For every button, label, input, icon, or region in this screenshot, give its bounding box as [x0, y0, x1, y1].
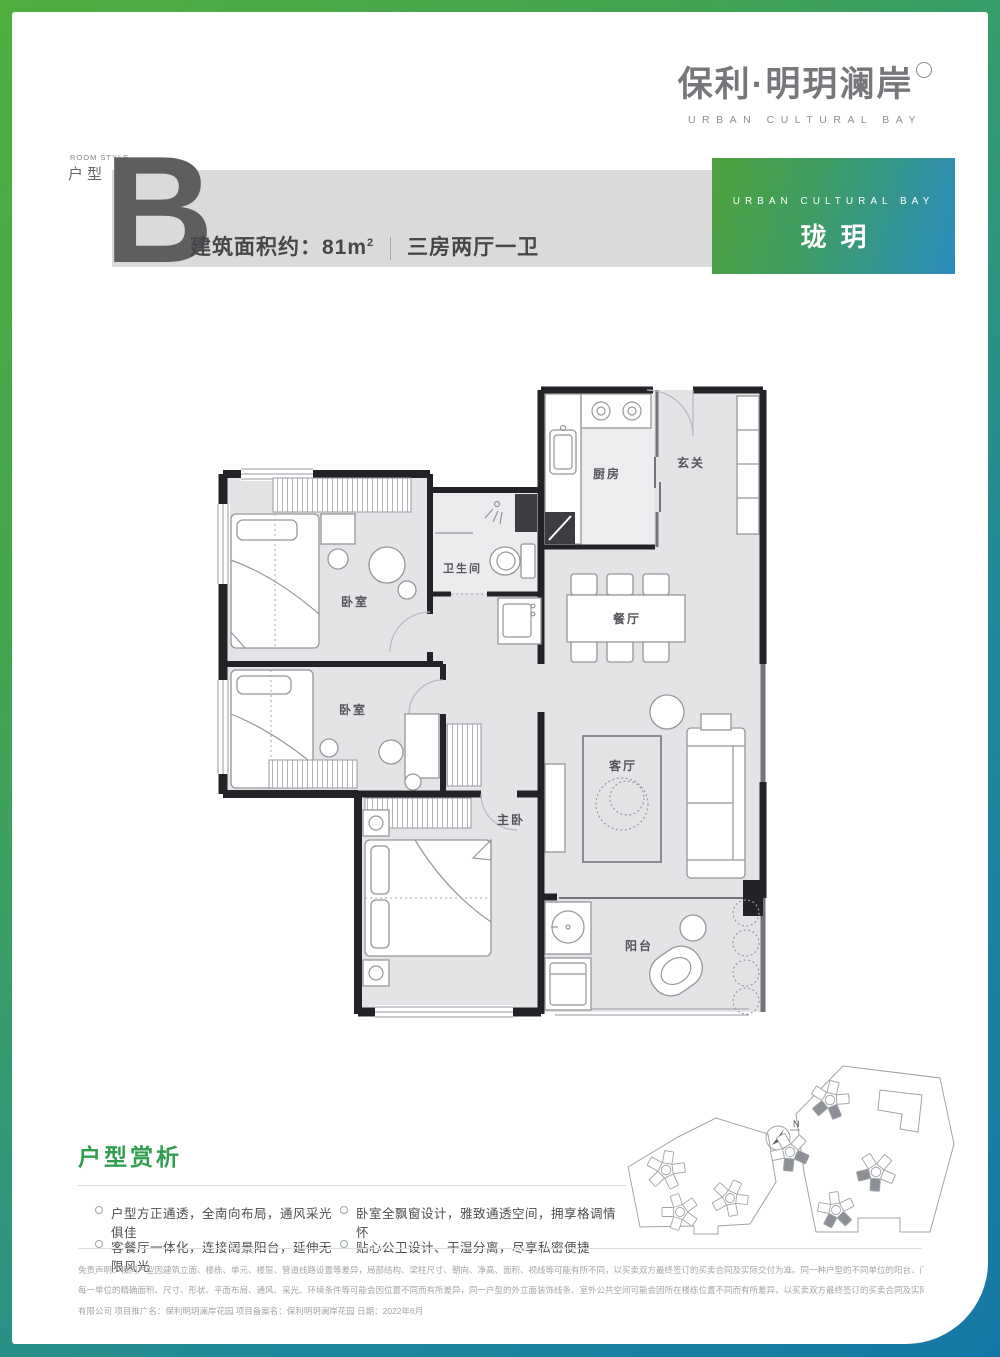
bullet-circle-icon — [340, 1206, 348, 1214]
analysis-bullet-4: 贴心公卫设计、干湿分离，尽享私密便捷 — [340, 1237, 620, 1256]
disclaimer: 免责声明：相同户型因建筑立面、楼栋、单元、楼层、管道线路设置等差异，局部结构、梁… — [78, 1260, 924, 1321]
site-plan: N — [618, 1052, 963, 1252]
room-style-label-cn: 户型 — [68, 163, 106, 184]
building-cluster — [644, 1148, 689, 1191]
building-footprint — [878, 1090, 922, 1132]
floor-plan: 厨房 玄关 卫生间 — [215, 362, 775, 1026]
bullet-circle-icon — [340, 1240, 348, 1248]
room-label-entry: 玄关 — [677, 455, 705, 470]
analysis-bullet-2: 卧室全飘窗设计，雅致通透空间，拥享格调情怀 — [340, 1203, 620, 1241]
building-cluster — [815, 1190, 857, 1230]
building-cluster — [764, 1126, 816, 1178]
vanity — [498, 598, 541, 644]
room-label-living: 客厅 — [608, 758, 637, 773]
parcel-left — [628, 1118, 776, 1234]
disclaimer-line: 有限公司 项目推广名：保利明玥澜岸花园 项目备案名：保利明玥澜岸花园 日期：20… — [78, 1301, 924, 1321]
disclaimer-line: 免责声明：相同户型因建筑立面、楼栋、单元、楼层、管道线路设置等差异，局部结构、梁… — [78, 1260, 924, 1280]
flyer-page: 保利·明玥澜岸 URBAN CULTURAL BAY ROOM STYLE 户型… — [0, 0, 1000, 1357]
brand-logo: 保利·明玥澜岸 URBAN CULTURAL BAY — [640, 56, 970, 126]
analysis-bullet-1: 户型方正通透，全南向布局，通风采光俱佳 — [95, 1203, 335, 1241]
room-label-dining: 餐厅 — [613, 611, 641, 626]
room-label-bedroom2: 卧室 — [339, 702, 367, 717]
footer-divider — [78, 1248, 922, 1249]
building-cluster — [807, 1077, 854, 1123]
analysis-divider — [78, 1185, 626, 1186]
hall-closet — [447, 724, 481, 786]
room-label-balcony: 阳台 — [625, 938, 653, 953]
layout-text: 三房两厅一卫 — [407, 231, 539, 261]
area-text: 建筑面积约：81m2 — [190, 231, 374, 261]
building-cluster — [706, 1174, 754, 1222]
analysis-title: 户型赏析 — [78, 1138, 182, 1172]
building-cluster — [849, 1145, 903, 1199]
spec-divider — [390, 237, 391, 260]
project-badge: URBAN CULTURAL BAY 珑玥 — [712, 158, 955, 274]
bullet-circle-icon — [95, 1240, 103, 1248]
room-label-kitchen: 厨房 — [593, 466, 621, 481]
badge-subtitle: URBAN CULTURAL BAY — [712, 196, 955, 207]
entry-cabinet — [737, 396, 759, 534]
registered-mark-icon — [916, 62, 932, 78]
unit-spec-line: 建筑面积约：81m2 三房两厅一卫 — [190, 231, 539, 261]
brand-name-en: URBAN CULTURAL BAY — [640, 114, 970, 126]
badge-title: 珑玥 — [712, 217, 955, 254]
unit-letter: B — [104, 134, 214, 286]
disclaimer-line: 每一单位的精确面积、尺寸、形状、平面布局、通风、采光、环境条件等可能会因位置不同… — [78, 1280, 924, 1300]
bullet-circle-icon — [95, 1206, 103, 1214]
brand-name-cn: 保利·明玥澜岸 — [640, 56, 970, 107]
svg-text:N: N — [793, 1119, 800, 1129]
room-label-bedroom1: 卧室 — [341, 594, 369, 609]
room-label-bath: 卫生间 — [443, 561, 482, 575]
room-label-master: 主卧 — [497, 812, 525, 827]
building-cluster — [657, 1189, 703, 1234]
